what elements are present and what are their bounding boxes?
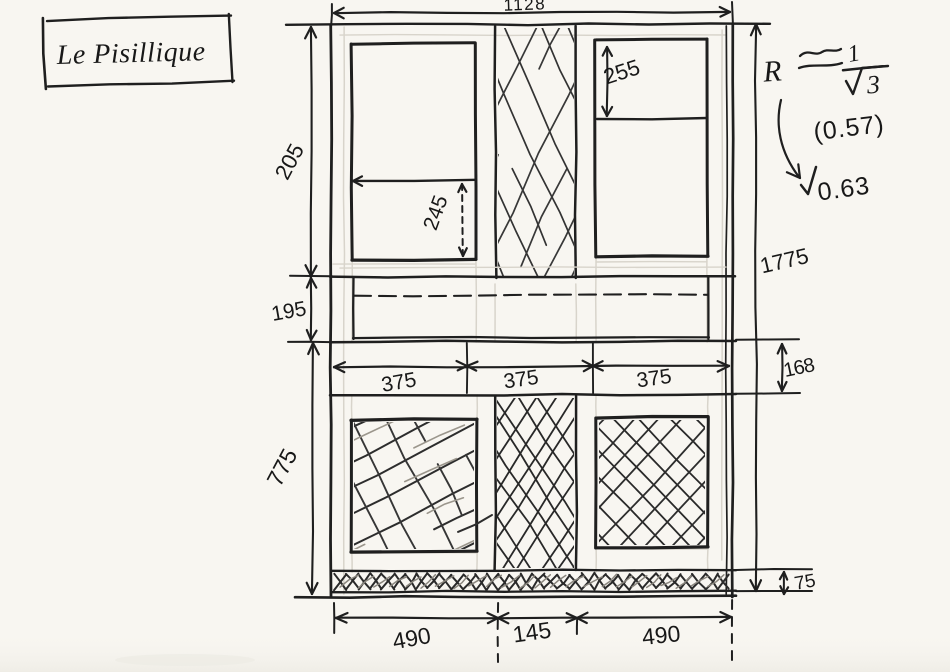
svg-text:Le Pisillique: Le Pisillique xyxy=(55,36,206,71)
svg-text:3: 3 xyxy=(865,70,881,100)
svg-text:375: 375 xyxy=(635,365,673,393)
svg-text:145: 145 xyxy=(511,617,553,648)
svg-text:375: 375 xyxy=(502,366,540,394)
svg-text:R: R xyxy=(761,54,783,88)
svg-text:490: 490 xyxy=(641,620,682,650)
svg-text:1128: 1128 xyxy=(503,0,546,15)
